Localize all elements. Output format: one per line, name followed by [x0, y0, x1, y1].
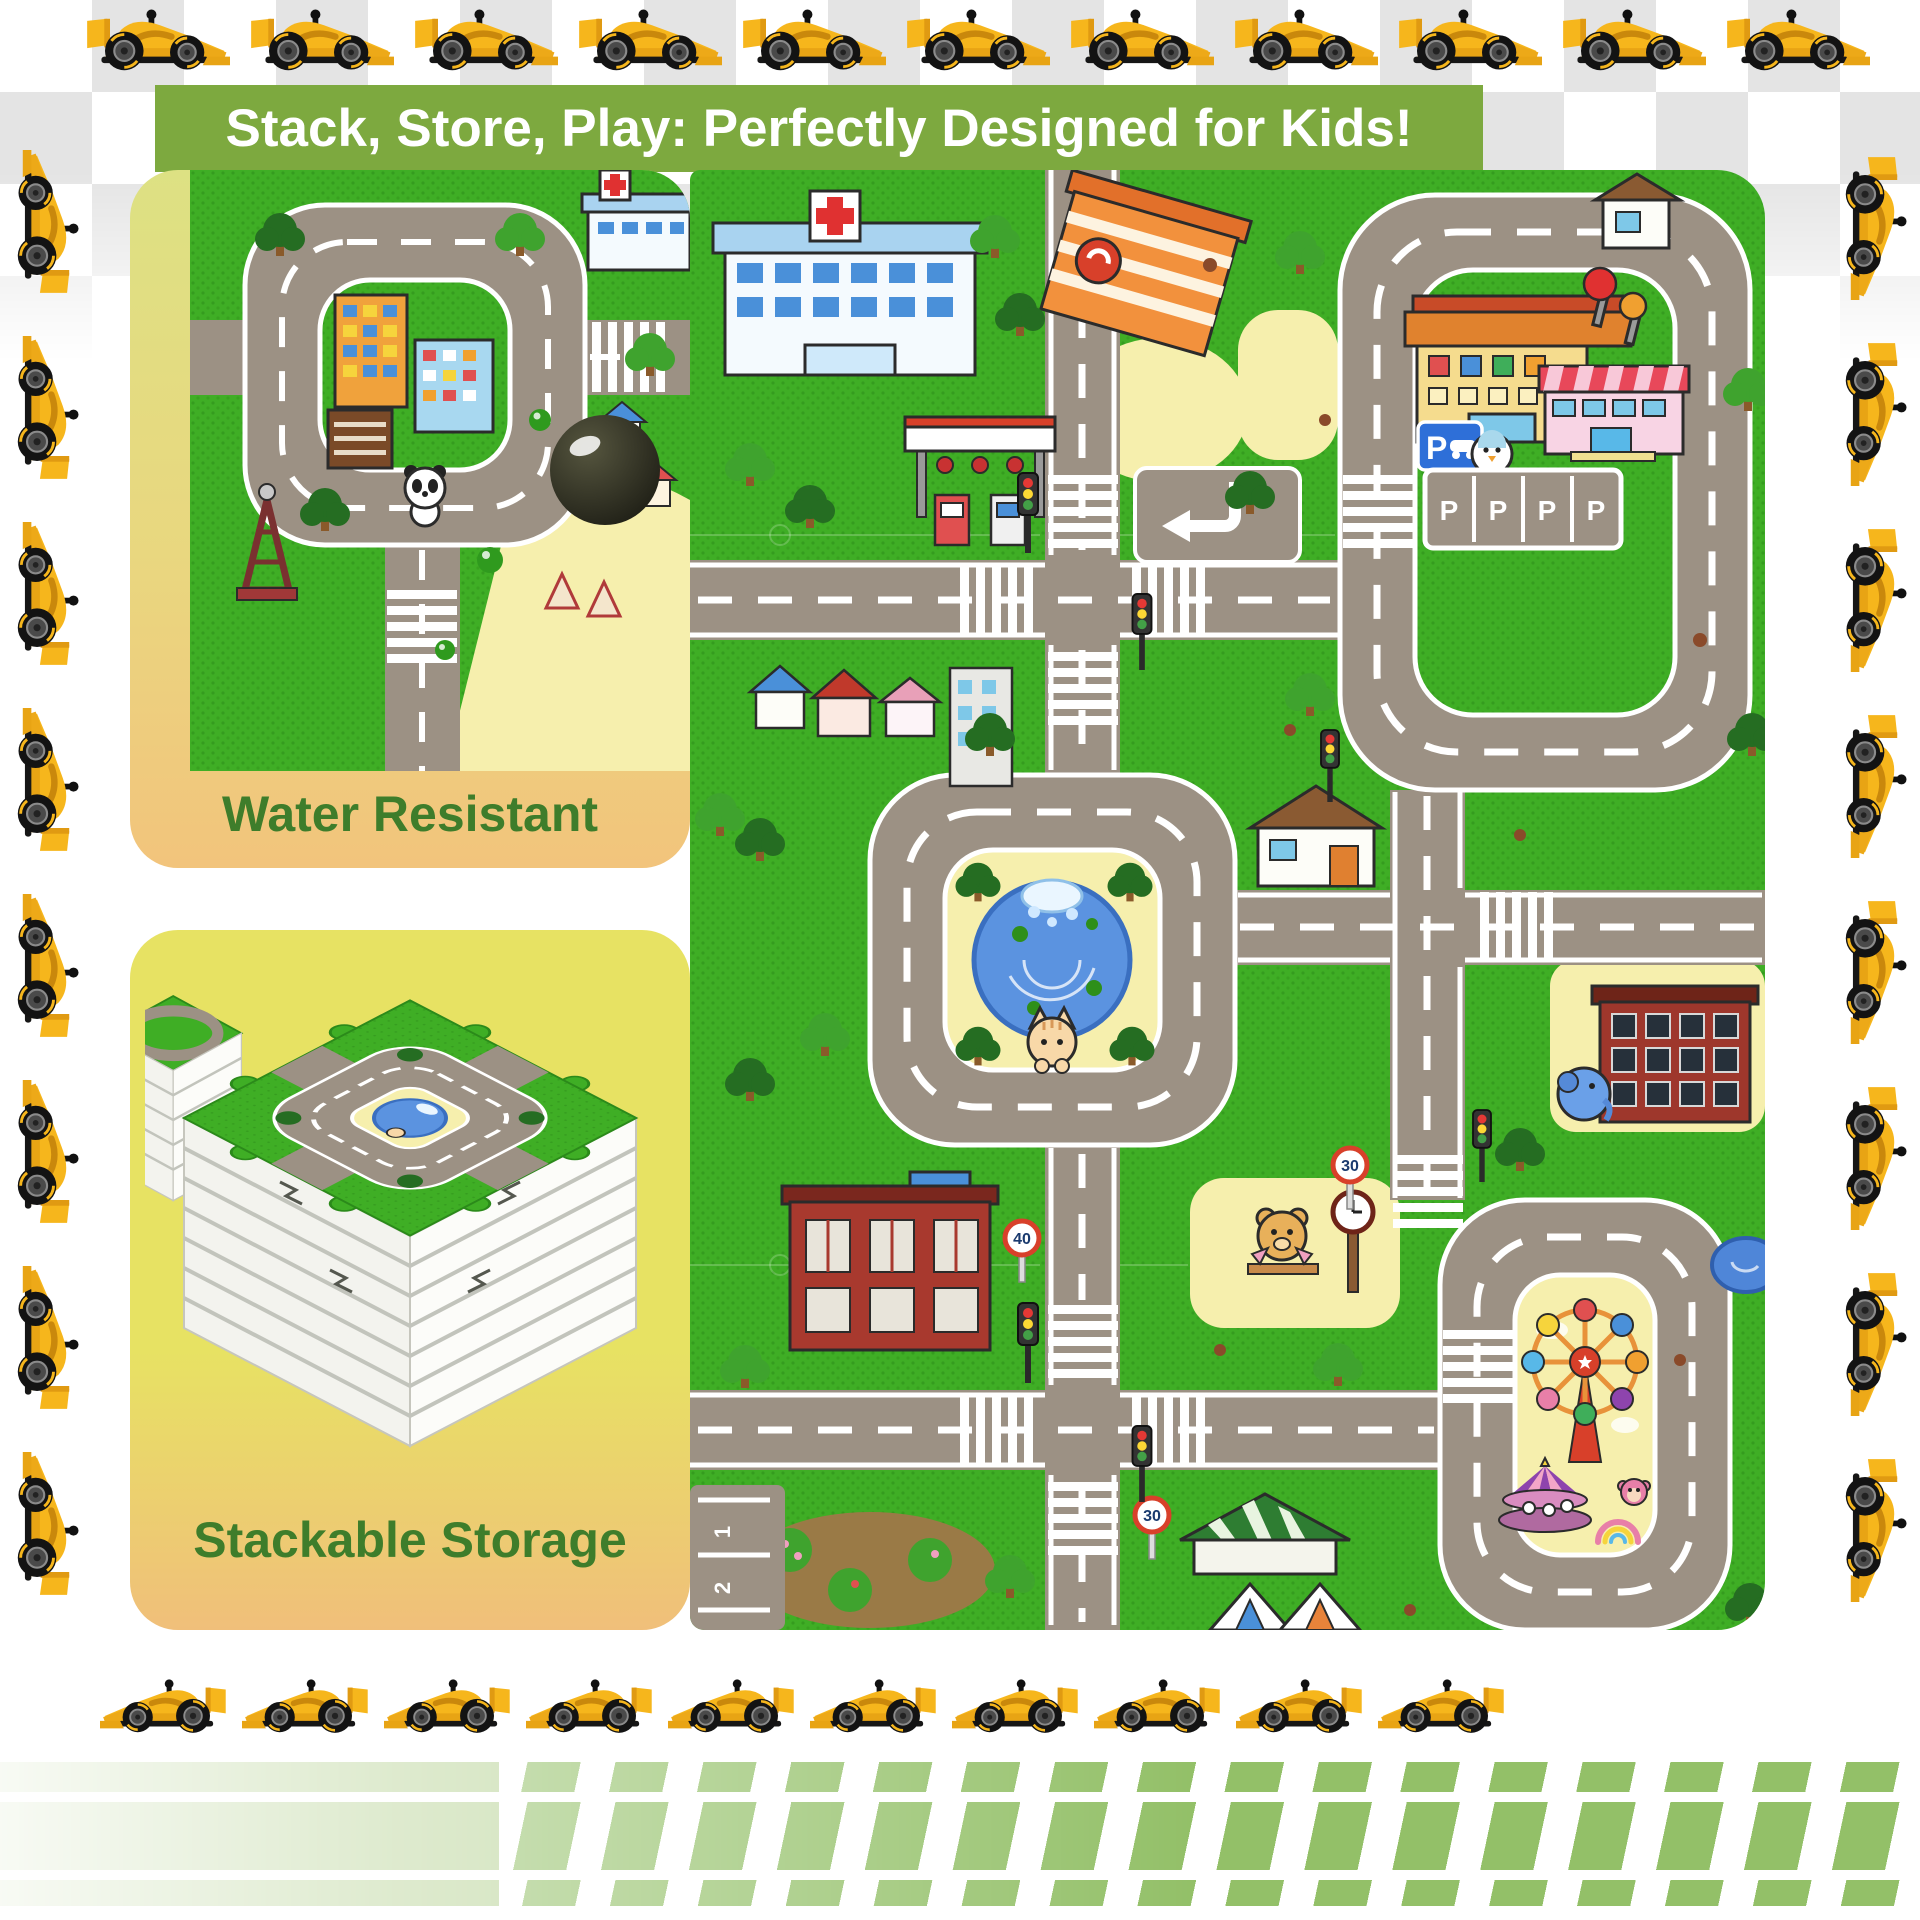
race-car-icon	[1228, 8, 1378, 76]
race-car-icon	[572, 8, 722, 76]
race-car-icon	[12, 522, 80, 672]
water-resistant-card: Water Resistant	[130, 170, 690, 868]
race-car-icon	[1556, 8, 1706, 76]
elephant-figure	[1558, 1068, 1610, 1120]
svg-text:40: 40	[1013, 1231, 1031, 1248]
arrow-lot	[1135, 468, 1300, 562]
race-car-icon	[80, 8, 230, 76]
race-car-icon	[12, 894, 80, 1044]
race-car-icon	[244, 8, 394, 76]
svg-text:1: 1	[710, 1526, 735, 1538]
pink-shop	[1539, 366, 1689, 461]
stackable-storage-label: Stackable Storage	[193, 1511, 627, 1569]
race-car-icon	[1840, 1080, 1908, 1230]
race-car-icon	[1840, 522, 1908, 672]
bottom-stripe-band-top	[0, 1762, 1920, 1792]
race-car-icon	[12, 336, 80, 486]
race-car-icon	[1840, 708, 1908, 858]
cat-character	[1028, 1008, 1076, 1073]
bottom-stripe-band-middle	[0, 1802, 1920, 1870]
pond	[1712, 1238, 1765, 1292]
water-resistant-mat-photo	[190, 170, 690, 771]
brick-building	[782, 1172, 998, 1350]
race-car-icon	[12, 1452, 80, 1602]
race-car-icon	[1840, 1452, 1908, 1602]
race-car-icon	[736, 8, 886, 76]
race-car-icon	[1392, 8, 1542, 76]
water-resistant-label: Water Resistant	[222, 785, 598, 843]
race-car-icon	[12, 1266, 80, 1416]
lane-parking: 1 2	[690, 1485, 785, 1630]
race-car-icon	[12, 150, 80, 300]
stackable-storage-card: Stackable Storage	[130, 930, 690, 1630]
svg-text:30: 30	[1143, 1508, 1161, 1525]
svg-text:P: P	[1426, 430, 1447, 466]
right-car-border	[1840, 150, 1908, 1602]
header-title: Stack, Store, Play: Perfectly Designed f…	[226, 98, 1413, 159]
bear-character	[1252, 1209, 1312, 1264]
bottom-car-border	[100, 1678, 1510, 1738]
race-car-icon	[1094, 1678, 1226, 1738]
svg-text:P: P	[1489, 495, 1508, 526]
parking-bays: P P P P	[1425, 470, 1621, 548]
race-car-icon	[12, 708, 80, 858]
top-car-border	[80, 8, 1870, 76]
race-car-icon	[1236, 1678, 1368, 1738]
race-car-icon	[1720, 8, 1870, 76]
race-car-icon	[810, 1678, 942, 1738]
race-car-icon	[1840, 1266, 1908, 1416]
race-car-icon	[900, 8, 1050, 76]
race-car-icon	[668, 1678, 800, 1738]
panda-character	[404, 465, 446, 526]
race-car-icon	[100, 1678, 232, 1738]
race-car-icon	[1064, 8, 1214, 76]
svg-text:P: P	[1587, 495, 1606, 526]
fountain-square	[956, 863, 1155, 1073]
header-banner: Stack, Store, Play: Perfectly Designed f…	[155, 85, 1483, 172]
race-car-icon	[242, 1678, 374, 1738]
race-car-icon	[952, 1678, 1084, 1738]
svg-text:P: P	[1440, 495, 1459, 526]
race-car-icon	[1840, 336, 1908, 486]
left-car-border	[12, 150, 80, 1602]
svg-text:30: 30	[1341, 1158, 1359, 1175]
bottom-stripe-band-bottom	[0, 1880, 1920, 1906]
race-car-icon	[12, 1080, 80, 1230]
city-play-mat: P P P P P	[690, 170, 1765, 1630]
race-car-icon	[526, 1678, 658, 1738]
race-car-icon	[1840, 894, 1908, 1044]
svg-text:2: 2	[710, 1582, 735, 1594]
race-car-icon	[384, 1678, 516, 1738]
svg-text:P: P	[1538, 495, 1557, 526]
race-car-icon	[1840, 150, 1908, 300]
race-car-icon	[408, 8, 558, 76]
race-car-icon	[1378, 1678, 1510, 1738]
stacked-mats-photo	[145, 960, 675, 1480]
